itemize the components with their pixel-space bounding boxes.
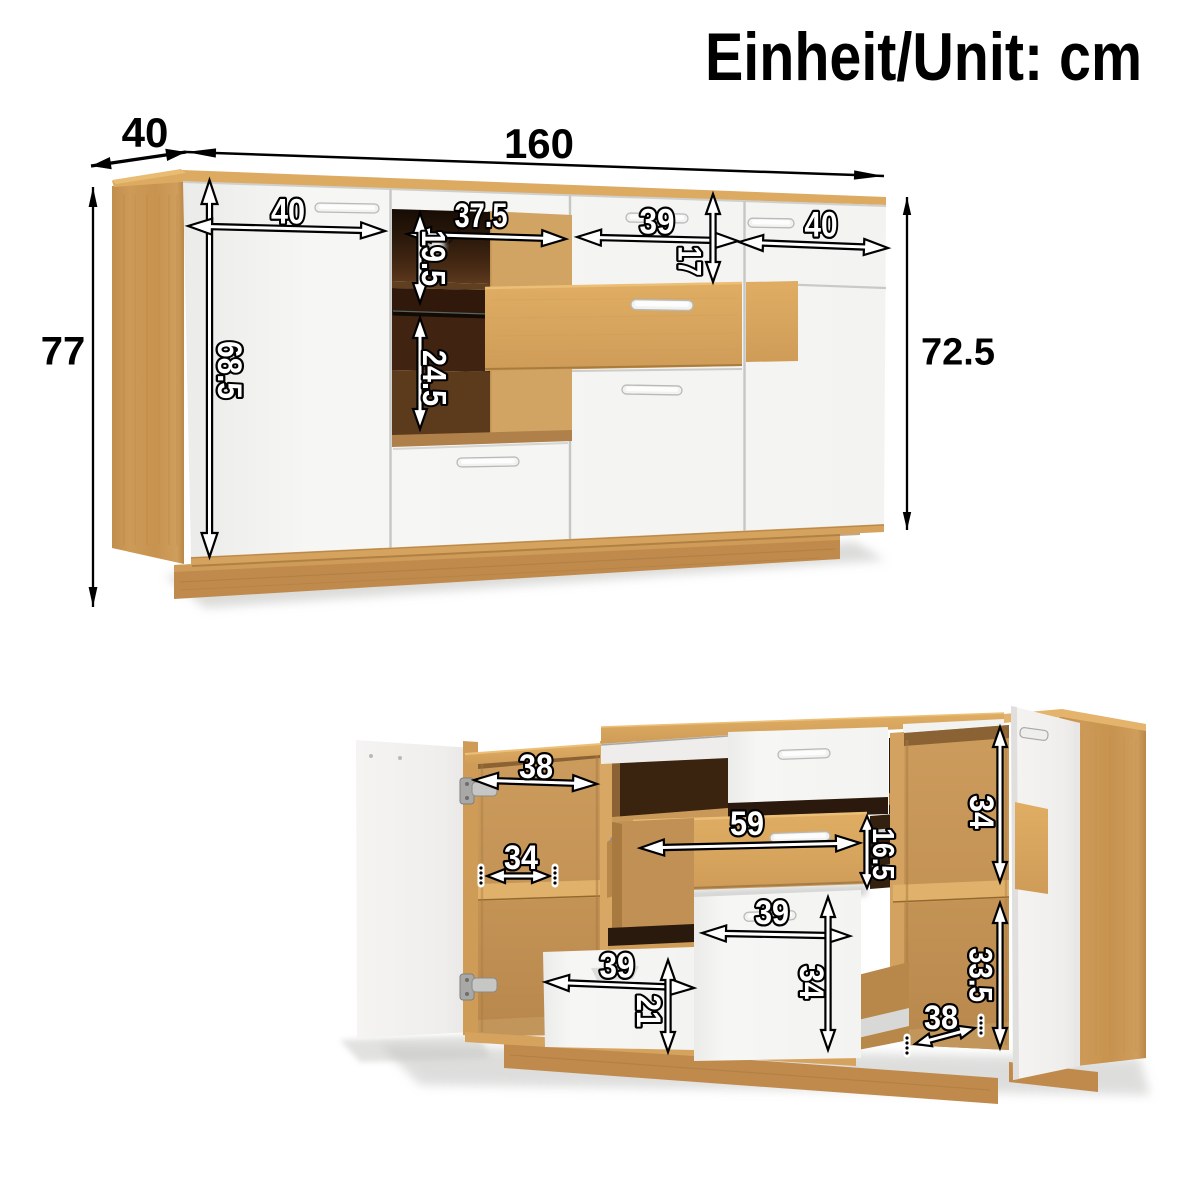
svg-text:34: 34	[504, 839, 538, 877]
svg-text:38: 38	[519, 748, 553, 786]
svg-text:68.5: 68.5	[210, 341, 248, 399]
svg-text:21: 21	[629, 995, 667, 1028]
svg-text:72.5: 72.5	[921, 332, 995, 374]
svg-text:39: 39	[640, 203, 675, 242]
svg-text:16.5: 16.5	[866, 828, 901, 880]
svg-text:39: 39	[600, 947, 635, 986]
svg-text:59: 59	[730, 805, 764, 843]
svg-text:40: 40	[122, 109, 169, 156]
svg-text:160: 160	[504, 120, 574, 167]
svg-text:77: 77	[41, 329, 86, 373]
svg-text:19.5: 19.5	[415, 230, 452, 286]
svg-text:34: 34	[962, 795, 1000, 829]
svg-text:40: 40	[271, 193, 305, 232]
svg-text:37.5: 37.5	[455, 197, 508, 235]
svg-text:38: 38	[924, 999, 958, 1037]
svg-text:Einheit/Unit: cm: Einheit/Unit: cm	[705, 19, 1142, 95]
svg-text:17: 17	[672, 246, 708, 276]
svg-text:34: 34	[792, 965, 830, 999]
svg-text:40: 40	[805, 206, 838, 245]
svg-text:39: 39	[755, 894, 789, 932]
svg-text:33.5: 33.5	[963, 948, 999, 1002]
svg-text:24.5: 24.5	[416, 350, 453, 406]
